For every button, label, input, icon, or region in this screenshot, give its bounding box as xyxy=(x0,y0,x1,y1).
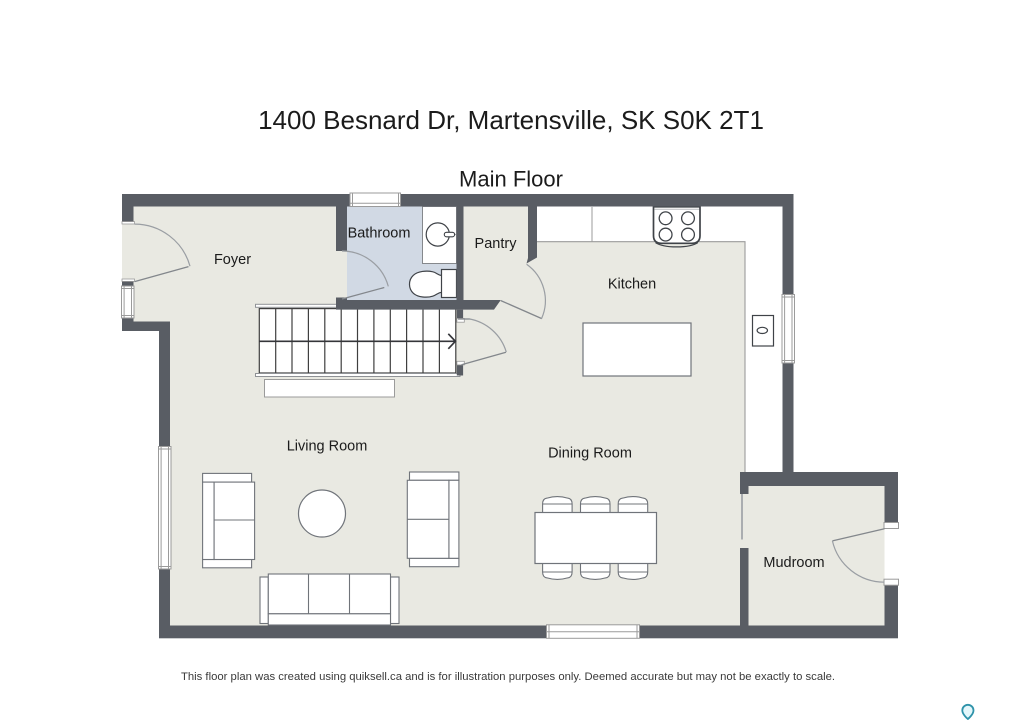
svg-text:Foyer: Foyer xyxy=(214,252,251,268)
svg-text:Mudroom: Mudroom xyxy=(763,555,824,571)
svg-text:Dining Room: Dining Room xyxy=(548,446,632,462)
svg-text:Main Floor: Main Floor xyxy=(459,167,563,192)
svg-text:1400 Besnard Dr, Martensville,: 1400 Besnard Dr, Martensville, SK S0K 2T… xyxy=(258,105,764,135)
svg-text:Bathroom: Bathroom xyxy=(348,226,411,242)
svg-text:Living Room: Living Room xyxy=(287,439,368,455)
svg-text:Pantry: Pantry xyxy=(475,236,518,252)
svg-text:Kitchen: Kitchen xyxy=(608,277,656,293)
svg-text:This floor plan was created us: This floor plan was created using quikse… xyxy=(181,671,835,683)
